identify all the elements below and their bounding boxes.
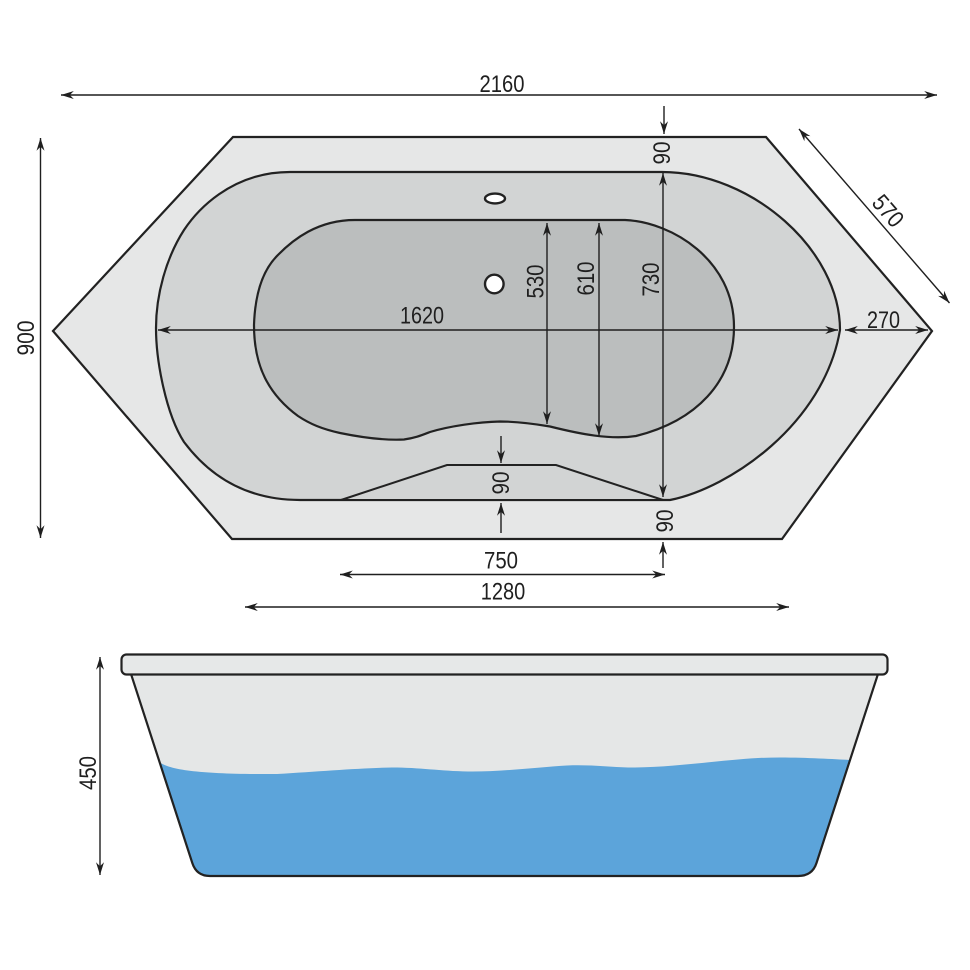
svg-text:750: 750: [484, 548, 518, 575]
svg-text:530: 530: [523, 265, 550, 299]
svg-text:900: 900: [13, 321, 40, 356]
svg-text:570: 570: [866, 190, 909, 233]
svg-text:1620: 1620: [400, 303, 444, 330]
svg-text:2160: 2160: [480, 71, 525, 98]
svg-text:610: 610: [573, 262, 600, 296]
svg-text:730: 730: [638, 263, 665, 297]
svg-text:450: 450: [75, 756, 102, 790]
svg-text:90: 90: [488, 472, 515, 495]
svg-text:270: 270: [867, 307, 900, 334]
svg-text:90: 90: [652, 510, 679, 533]
svg-text:1280: 1280: [481, 579, 526, 606]
svg-text:90: 90: [649, 142, 676, 165]
